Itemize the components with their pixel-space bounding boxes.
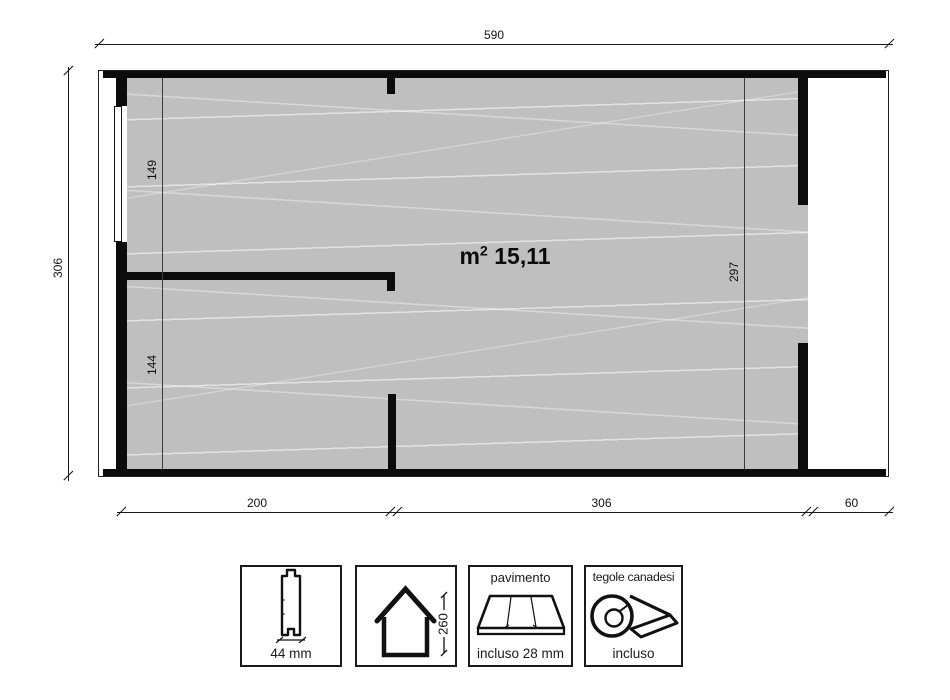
house-icon: 260 <box>357 567 455 665</box>
area-value: 15,11 <box>494 243 550 269</box>
wall-top <box>103 71 886 78</box>
wall-right-lower <box>798 343 808 469</box>
wall-right-upper <box>798 78 808 205</box>
floor-panel-icon <box>470 592 571 640</box>
dim-bottom-left: 200 <box>121 496 393 510</box>
window-glazing <box>114 106 122 242</box>
floor-plan-sheet: 149 144 297 m2 15,11 590 306 200 306 60 … <box>0 0 950 700</box>
area-unit: m <box>459 243 479 269</box>
dimension-line-main-room <box>744 78 745 469</box>
partition-wall-horizontal <box>127 272 395 280</box>
plank-profile-icon <box>243 567 339 643</box>
area-sup: 2 <box>480 243 488 259</box>
window-opening <box>114 106 127 242</box>
area-label: m2 15,11 <box>430 243 580 270</box>
roof-note: incluso <box>612 646 654 661</box>
roofing-roll-icon <box>586 589 681 641</box>
dim-line-total-depth <box>68 67 69 481</box>
dim-total-width: 590 <box>99 28 889 42</box>
house-height-label: 260 <box>435 613 450 635</box>
building-outline: 149 144 297 m2 15,11 <box>98 70 889 477</box>
dim-bottom-middle: 306 <box>397 496 806 510</box>
dim-total-depth: 306 <box>51 248 65 288</box>
legend-roof-box: tegole canadesi incluso <box>584 565 683 667</box>
dim-bottom-right: 60 <box>813 496 890 510</box>
dimension-line-left-rooms <box>162 78 163 469</box>
dim-room-bottom-depth: 144 <box>145 345 159 385</box>
dim-line-total-width <box>95 44 893 45</box>
legend-floor-box: pavimento incluso 28 mm <box>468 565 573 667</box>
floor-note: incluso 28 mm <box>477 646 564 661</box>
legend-house-height-box: 260 <box>355 565 457 667</box>
wall-thickness-label: 44 mm <box>270 646 311 661</box>
partition-stub-top <box>387 78 395 94</box>
dim-line-bottom <box>117 512 893 513</box>
partition-stub-bottom <box>388 394 396 469</box>
dim-main-room-depth: 297 <box>727 252 741 292</box>
dim-room-top-depth: 149 <box>145 150 159 190</box>
roof-title: tegole canadesi <box>593 570 675 584</box>
partition-wall-end-stub <box>387 280 395 291</box>
floor-title: pavimento <box>491 570 551 585</box>
wall-bottom <box>103 469 886 476</box>
legend-wall-thickness-box: 44 mm <box>240 565 342 667</box>
